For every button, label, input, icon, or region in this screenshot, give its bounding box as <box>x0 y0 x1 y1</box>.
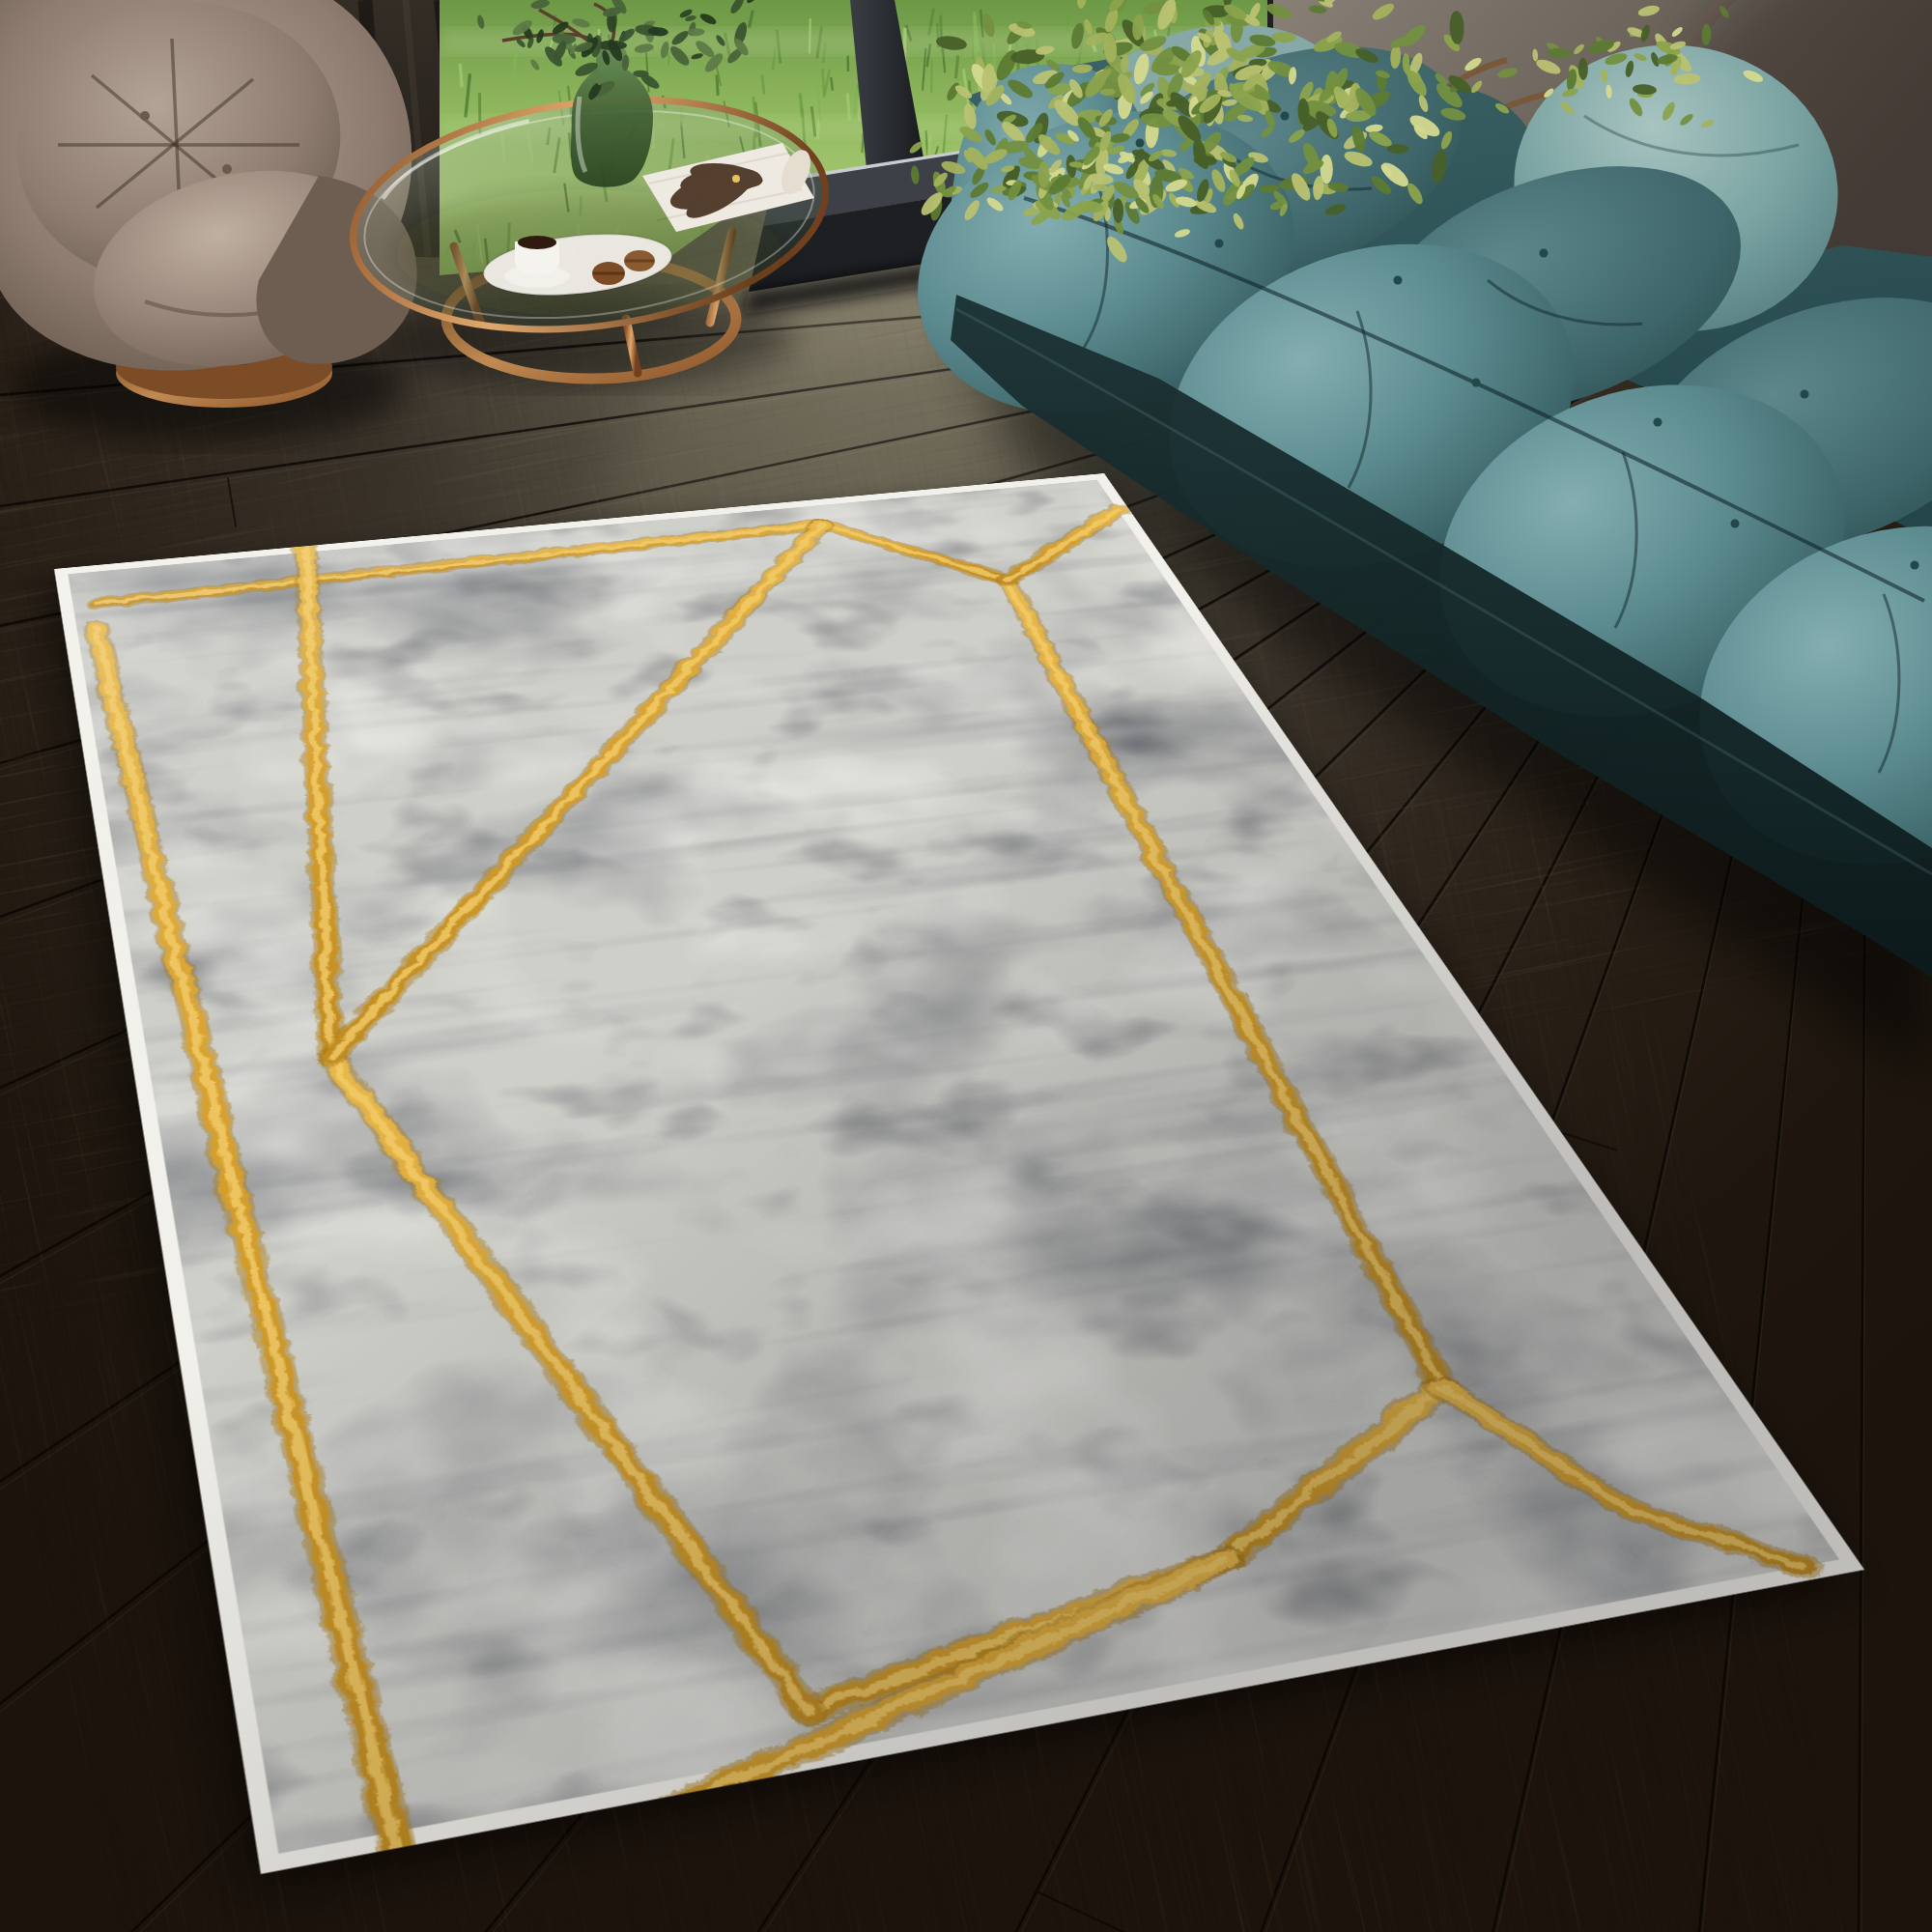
magazine-art-accent <box>732 175 740 183</box>
coffee-surface <box>518 236 556 249</box>
armchair <box>0 0 417 408</box>
coffee-table <box>340 0 839 379</box>
furniture-layer <box>0 0 1932 1932</box>
living-room-photo <box>0 0 1932 1932</box>
